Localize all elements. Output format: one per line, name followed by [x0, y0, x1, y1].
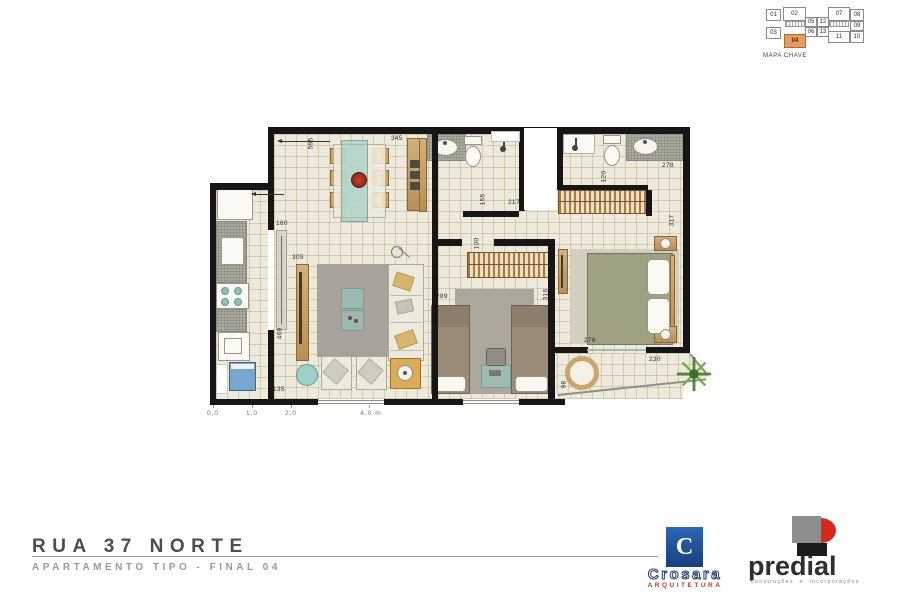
- key-map-unit: 06: [805, 27, 817, 37]
- annotation-arrow: [256, 194, 284, 195]
- wall: [268, 134, 274, 185]
- pillow: [647, 259, 670, 295]
- round-side-table: [296, 364, 318, 386]
- dimension-label: 100: [473, 238, 480, 250]
- dimension-label: 595: [307, 138, 314, 150]
- suite-tv-panel: [558, 249, 568, 294]
- shower-stall: [563, 134, 595, 154]
- cabinet-line: [281, 236, 282, 324]
- burner: [234, 287, 242, 295]
- wall: [384, 399, 438, 405]
- annotation-arrow: [282, 141, 330, 142]
- window-line: [318, 403, 384, 404]
- wall: [646, 190, 652, 216]
- dimension-label: 135: [273, 386, 285, 393]
- toilet-tank: [464, 136, 482, 145]
- suite-tv-screen: [561, 255, 563, 288]
- dimension-label: 217: [508, 199, 520, 206]
- predial-red-halfdisc: [821, 518, 836, 543]
- kitchen-sink: [221, 237, 244, 265]
- dimension-label: 155: [479, 194, 486, 206]
- service-door: [216, 364, 228, 394]
- window-line: [463, 403, 519, 404]
- pillow: [515, 376, 548, 392]
- key-map-stairs-hatch: [785, 21, 805, 27]
- sideboard-drawer: [410, 182, 420, 190]
- wall: [519, 399, 565, 405]
- suite-closet: [558, 190, 647, 214]
- toilet-bowl: [604, 145, 620, 166]
- sideboard-drawer: [410, 160, 420, 168]
- shower-arm: [575, 138, 577, 146]
- pillow: [434, 376, 466, 392]
- predial-gray-square: [792, 516, 821, 543]
- lounge-chair: [565, 356, 599, 390]
- tv-screen: [299, 272, 302, 344]
- faucet: [643, 140, 647, 144]
- key-map-unit: 10: [850, 31, 864, 43]
- sliding-door-track: [587, 349, 646, 351]
- dimension-label: 98: [560, 381, 567, 389]
- burner: [221, 287, 229, 295]
- decor-item: [348, 316, 352, 320]
- crosara-name: Crosara: [630, 566, 740, 583]
- centerpiece: [351, 172, 367, 188]
- key-map-unit: 03: [766, 27, 781, 39]
- desk-item: [489, 370, 501, 376]
- dimension-label: 317: [668, 215, 675, 227]
- sofa-seam: [390, 350, 422, 351]
- window-line: [463, 400, 519, 401]
- dimension-label: 278: [584, 337, 596, 344]
- key-map-unit: 11: [828, 31, 850, 43]
- sideboard-drawer: [410, 171, 420, 179]
- wall: [432, 239, 462, 246]
- tall-cabinet: [419, 138, 427, 212]
- desk-chair: [486, 348, 506, 366]
- burner: [234, 298, 242, 306]
- closet-rail: [558, 201, 647, 202]
- dimension-label: 289: [436, 293, 448, 300]
- key-map-stairs-hatch: [829, 21, 849, 27]
- dimension-label: 230: [649, 356, 661, 363]
- cooktop: [216, 283, 249, 309]
- wall: [210, 399, 274, 405]
- bedroom1-closet: [467, 252, 554, 278]
- window-line: [318, 400, 384, 401]
- nightstand-lamp: [660, 329, 671, 340]
- dimension-label: 469: [276, 328, 283, 340]
- washing-machine-panel: [231, 364, 254, 369]
- wall: [548, 353, 555, 399]
- wall: [463, 211, 519, 217]
- oven-door: [224, 338, 242, 354]
- wall: [268, 183, 274, 230]
- crosara-monogram: C: [676, 534, 693, 561]
- dimension-label: 305: [292, 254, 304, 261]
- toilet-bowl: [465, 146, 481, 167]
- dimension-label: 345: [391, 135, 403, 142]
- wall: [683, 134, 690, 353]
- key-map-unit: 09: [850, 21, 864, 31]
- logo-predial: predial construções e incorporações: [745, 512, 875, 592]
- faucet: [443, 141, 447, 145]
- wall: [268, 330, 274, 405]
- entry-door: [491, 131, 520, 142]
- table-lamp-center: [403, 371, 407, 375]
- refrigerator: [217, 189, 253, 220]
- wall: [557, 185, 648, 190]
- key-map-unit: 05: [805, 17, 817, 27]
- tv-panel: [296, 264, 309, 361]
- wall: [268, 399, 318, 405]
- entry-hall: [524, 128, 557, 210]
- wall: [557, 128, 563, 190]
- plant-icon: [675, 353, 713, 395]
- decor-item: [354, 319, 358, 323]
- annotation-arrowhead: [277, 139, 282, 143]
- key-map-unit: 02: [783, 7, 806, 21]
- kitchen-counter: [216, 309, 247, 332]
- coffee-table: [341, 288, 364, 309]
- predial-tagline: construções e incorporações: [751, 579, 860, 585]
- dimension-label: 160: [276, 220, 288, 227]
- coffee-table: [341, 310, 364, 331]
- wall: [494, 239, 550, 246]
- dimension-label: 120: [600, 171, 607, 183]
- closet-rail: [467, 264, 554, 265]
- sofa-seam: [390, 322, 422, 323]
- key-map-unit: 07: [828, 7, 850, 21]
- wall: [210, 190, 216, 405]
- bed-blanket: [512, 306, 551, 327]
- annotation-arrowhead: [251, 192, 256, 196]
- wall: [210, 183, 274, 190]
- wall: [432, 399, 463, 405]
- toilet-tank: [603, 135, 621, 144]
- wall: [432, 134, 438, 399]
- nightstand-lamp: [660, 238, 671, 249]
- wall: [646, 347, 690, 353]
- key-map-unit: 08: [850, 9, 864, 21]
- key-map-unit: 01: [766, 9, 781, 21]
- key-map-unit-highlighted: 04: [784, 34, 806, 48]
- crosara-logo-mark: C: [666, 527, 703, 567]
- dimension-label: 278: [662, 162, 674, 169]
- logo-crosara: C Crosara ARQUITETURA: [628, 524, 743, 594]
- wall: [268, 127, 690, 134]
- desk: [481, 365, 511, 388]
- burner: [221, 298, 229, 306]
- dimension-label: 316: [542, 289, 549, 301]
- predial-name: predial: [748, 551, 837, 582]
- sofa-seam: [390, 295, 422, 296]
- page: 01 02 03 04 05 12 06 13 07 08 09 10 11 M…: [0, 0, 900, 600]
- crosara-tagline: ARQUITETURA: [630, 582, 740, 589]
